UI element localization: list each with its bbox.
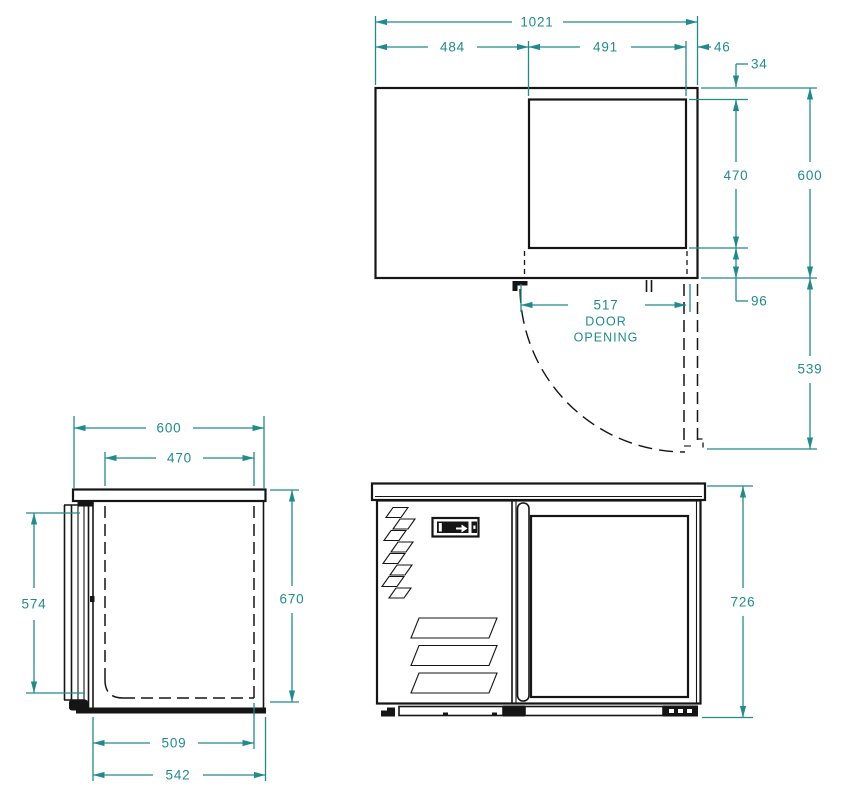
- front-left-foot: [381, 708, 395, 717]
- dim-label-side-opening-depth: 470: [167, 451, 192, 466]
- front-base: [381, 706, 698, 717]
- dim-label-plan-back-inset: 34: [751, 57, 768, 72]
- dim-label-plan-door-opening-value: 517: [594, 298, 619, 313]
- dim-plan-door-swing: 539: [798, 278, 823, 449]
- front-hinge-pillar: [518, 503, 530, 701]
- dim-plan-opening-depth: 470: [724, 100, 749, 249]
- dim-side-door-height: 574: [22, 513, 47, 693]
- side-door: [64, 505, 88, 711]
- dim-label-plan-front-inset: 96: [751, 294, 768, 309]
- dim-plan-left-section: 484: [376, 40, 529, 55]
- dim-label-plan-opening-depth: 470: [724, 168, 749, 183]
- front-view-dimensions: 726: [702, 486, 755, 718]
- front-control-panel: [433, 518, 479, 537]
- dim-label-side-inner-base-depth: 509: [162, 736, 187, 751]
- front-countertop: [372, 484, 705, 501]
- side-base-bar: [76, 708, 266, 714]
- top-view: 1021 484 491 46 34: [376, 15, 823, 453]
- top-view-dimensions: 1021 484 491 46 34: [376, 15, 823, 450]
- dim-label-side-body-height: 670: [280, 592, 305, 607]
- plan-cabinet-outline: [376, 88, 698, 278]
- dim-label-side-overall-depth: 600: [157, 421, 182, 436]
- front-upper-vents: [382, 508, 415, 599]
- dim-label-plan-side-margin: 46: [714, 40, 731, 55]
- dim-label-side-base-depth: 542: [166, 768, 191, 783]
- dim-side-body-height: 670: [280, 490, 305, 702]
- plan-door-opening: [529, 100, 686, 249]
- dim-front-overall-height: 726: [731, 486, 756, 718]
- dim-side-overall-depth: 600: [74, 421, 264, 436]
- side-view: 600 470 574 670: [22, 416, 305, 783]
- dim-label-plan-overall-width: 1021: [520, 15, 553, 30]
- dim-plan-overall-width: 1021: [376, 15, 698, 30]
- dim-label-plan-door-opening-word1: DOOR: [585, 315, 627, 329]
- front-door-panel: [531, 516, 688, 697]
- dim-label-plan-left-section: 484: [440, 40, 465, 55]
- side-interior-hidden: [105, 506, 254, 698]
- front-lower-vents: [411, 618, 497, 693]
- dim-plan-back-inset: 34: [736, 57, 768, 88]
- dim-side-opening-depth: 470: [105, 451, 254, 466]
- dim-label-plan-overall-depth: 600: [798, 168, 823, 183]
- plan-hinge-mark: [647, 280, 652, 292]
- technical-drawing: 1021 484 491 46 34: [0, 0, 844, 791]
- front-view: 726: [372, 484, 755, 718]
- dim-plan-side-margin: 46: [698, 40, 731, 55]
- dim-side-inner-base-depth: 509: [93, 736, 254, 751]
- dim-plan-door-panel: 491: [529, 40, 687, 55]
- plan-door-swing-arc: [520, 289, 685, 452]
- side-door-hinge: [69, 700, 88, 711]
- side-lock-mark: [90, 596, 95, 602]
- dim-label-side-door-height: 574: [22, 597, 47, 612]
- plan-door-open-dashed: [684, 284, 703, 448]
- drawing-canvas: 1021 484 491 46 34: [0, 0, 844, 791]
- dim-label-plan-door-opening-word2: OPENING: [574, 331, 639, 345]
- side-countertop: [73, 490, 266, 502]
- dim-label-plan-door-panel: 491: [593, 40, 618, 55]
- dim-side-base-depth: 542: [93, 768, 266, 783]
- dim-plan-door-opening: 517 DOOR OPENING: [521, 298, 686, 345]
- dim-label-plan-door-swing: 539: [798, 362, 823, 377]
- dim-label-front-overall-height: 726: [731, 595, 756, 610]
- dim-plan-overall-depth: 600: [798, 88, 823, 278]
